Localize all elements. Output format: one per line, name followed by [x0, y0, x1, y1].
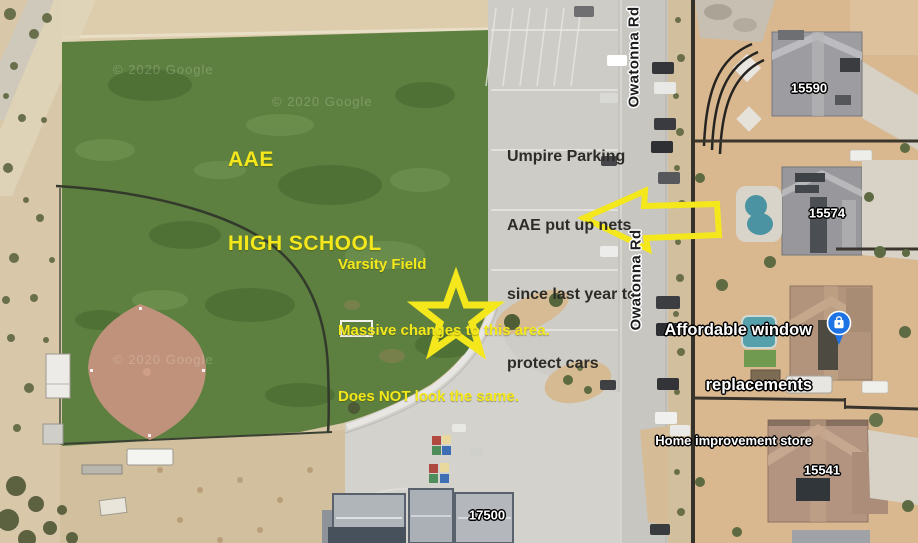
imagery-watermark: © 2020 Google — [113, 352, 214, 367]
road-label-owatonna-top: Owatonna Rd — [626, 6, 643, 107]
address-label-15574: 15574 — [809, 206, 845, 221]
business-poi-label[interactable]: Affordable window replacements Home impr… — [655, 285, 812, 466]
house-15590 — [772, 30, 862, 116]
address-label-17500: 17500 — [469, 508, 505, 523]
address-label-15590: 15590 — [791, 81, 827, 96]
business-category: Home improvement store — [655, 433, 812, 448]
school-name-line1: AAE — [228, 146, 382, 174]
business-name-line1[interactable]: Affordable window — [655, 321, 812, 340]
road-label-owatonna-bottom: Owatonna Rd — [628, 229, 645, 330]
satellite-map-view[interactable]: © 2020 Google © 2020 Google © 2020 Googl… — [0, 0, 918, 543]
white-trailer — [127, 449, 173, 465]
imagery-watermark: © 2020 Google — [113, 62, 214, 77]
business-pin-icon[interactable] — [817, 292, 852, 351]
varsity-field-note: Varsity Field Massive changes to this ar… — [338, 210, 550, 430]
business-name-line2[interactable]: replacements — [655, 376, 812, 395]
